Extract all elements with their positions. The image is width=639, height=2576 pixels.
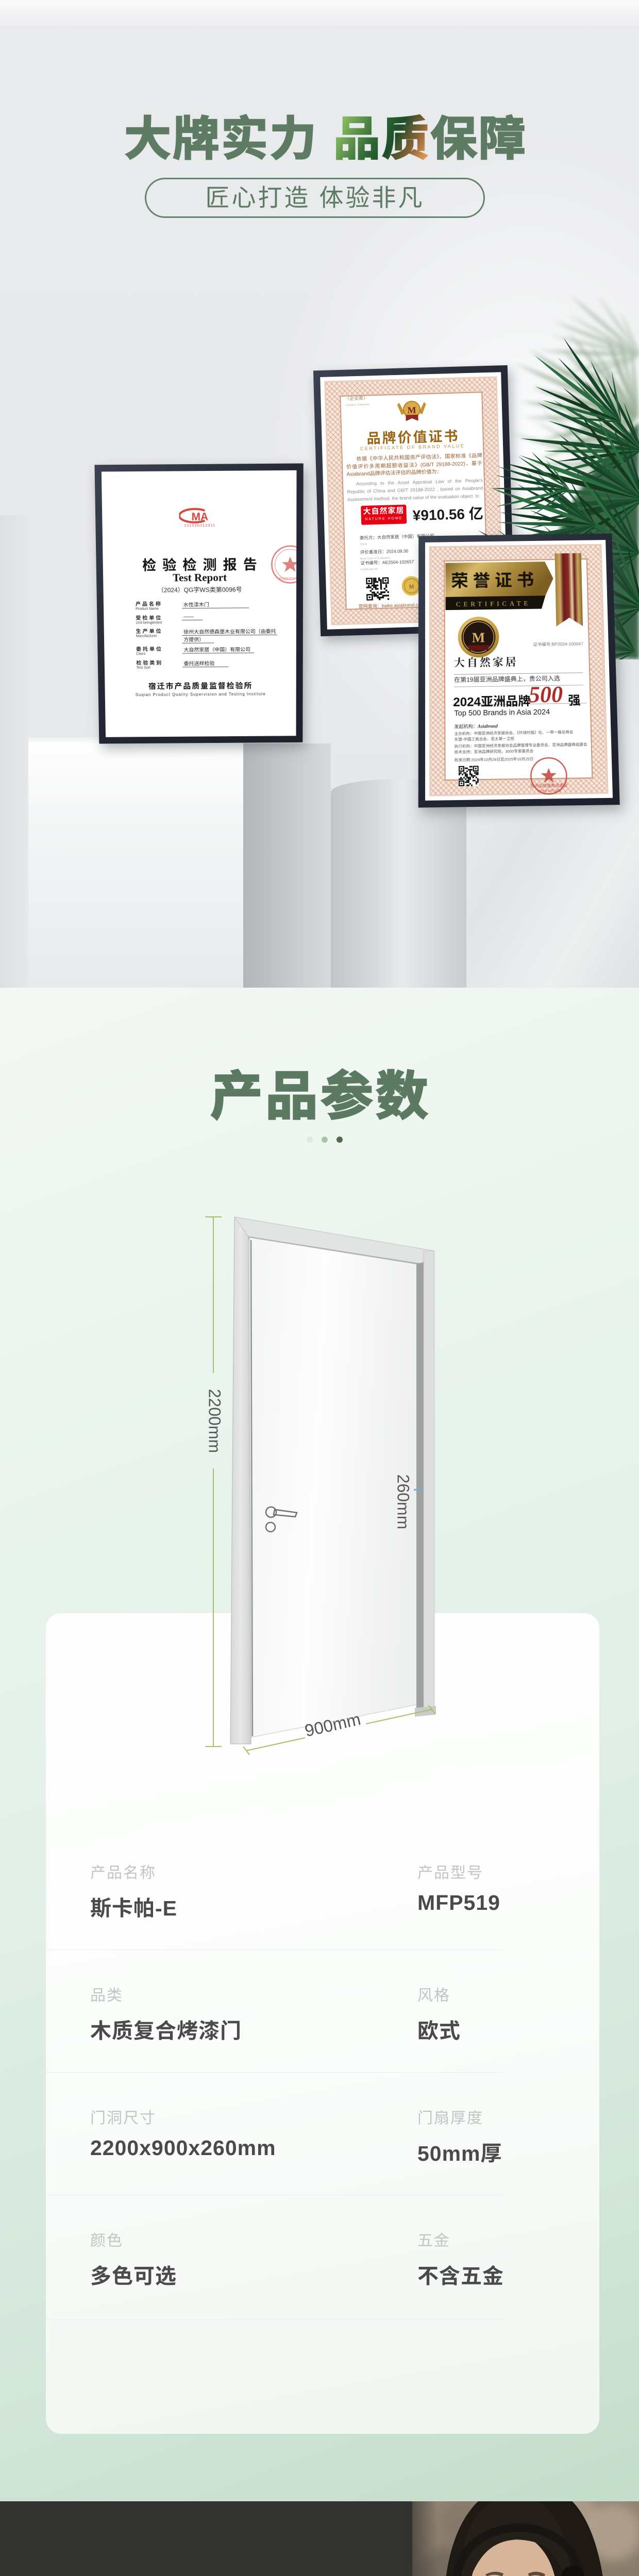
svg-text:产品参数: 产品参数 (210, 1067, 431, 1126)
svg-text:CERTIFICATE: CERTIFICATE (456, 600, 531, 608)
svg-text:2200mm: 2200mm (206, 1389, 224, 1453)
svg-text:亚洲品牌盛典组委会: 亚洲品牌盛典组委会 (530, 783, 568, 788)
svg-text:260mm: 260mm (394, 1475, 413, 1530)
svg-text:大牌实力品质保障: 大牌实力品质保障 (124, 113, 527, 165)
svg-text:荣誉证书: 荣誉证书 (451, 571, 539, 591)
svg-text:M: M (409, 584, 414, 590)
svg-text:MA: MA (191, 511, 208, 522)
svg-text:M: M (472, 630, 485, 645)
svg-text:211020112311: 211020112311 (184, 523, 215, 528)
svg-text:M: M (407, 405, 416, 415)
svg-text:2024年10月26日: 2024年10月26日 (537, 789, 561, 793)
